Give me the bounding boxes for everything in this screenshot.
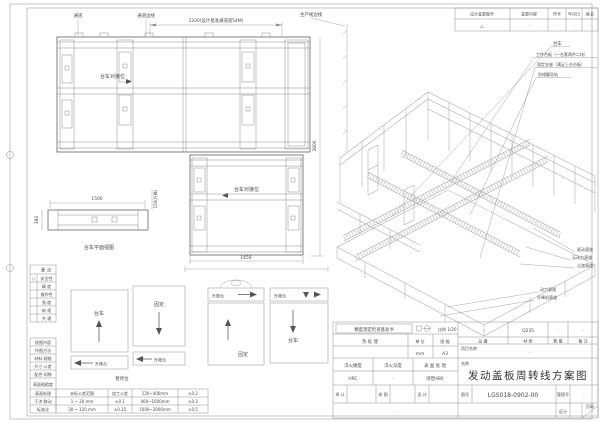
review-label: 校 图 (378, 391, 387, 397)
rev-val-1: △ (480, 25, 484, 30)
depth-label: 淬火深度 (384, 362, 402, 369)
rev-val-2: · (528, 25, 529, 30)
checklist-header: 重 点 (41, 267, 52, 274)
approve-label: 承 认 (335, 391, 344, 397)
checklist-item2: 材料·规格 (34, 355, 51, 361)
station-sub-label: 升降台 (154, 357, 166, 363)
checklist-item2: 表面粗糙度 (33, 381, 53, 387)
checklist-item: 强 度 (42, 299, 51, 305)
project-value: · (529, 351, 530, 356)
dim-380: 380 (34, 216, 40, 225)
qty-label: 数 量 (553, 338, 562, 344)
callout-workpiece-plate: 工件台板（一台套两件二块） (536, 51, 588, 57)
class-label: 区分 (559, 408, 567, 414)
material-label: 材 质 (523, 338, 532, 344)
tol-cell: 120~400mm (142, 391, 169, 396)
cad-canvas: 设计变更图号 变更内容 符号 年月日 姓名 △ · · · · 台车对接位 (0, 0, 600, 424)
checklist-item: 操作性 (41, 291, 53, 297)
callout-anti-tip-rail: 防倾翻导轨 (538, 71, 558, 77)
checklist-item2: 尺寸·公差 (34, 363, 51, 369)
dim-2200: 2200(设计基准通道宽54M) (189, 17, 244, 24)
note-value: · (582, 329, 583, 334)
unit-label: 单 位 (415, 338, 424, 344)
checklist-item: 精 度 (42, 283, 51, 289)
tol-cell: ±0.15 (114, 407, 127, 412)
dim-1500: 1500 (91, 196, 102, 202)
rev-col-3: 符号 (553, 11, 561, 17)
tol-cell: 30 ~ 120 mm (68, 407, 96, 412)
note-label: 备 注 (578, 338, 587, 344)
station-box-label: 台车 (94, 310, 104, 317)
revision-table: 设计变更图号 变更内容 符号 年月日 姓名 △ · · · · (455, 8, 598, 31)
mgmt-value: · (583, 393, 584, 398)
callout-drive-roller: 驱动滚道 (577, 246, 593, 252)
station-box-label: 固定 (238, 351, 248, 358)
plan-view-top: 台车对接位 通道 通道边线 2200(设计基准通道宽54M) 生产线边线 (57, 11, 347, 152)
checklist-mark-0: ○ (32, 276, 36, 281)
rev-col-2: 变更内容 (521, 11, 537, 17)
format-label: 图 幅 (440, 338, 449, 344)
format-value: A3 (442, 351, 448, 357)
callout-transition-roller: 过渡滚道 (577, 262, 593, 268)
checklist-item2: 作图方法 (35, 347, 51, 353)
hardness-value: HRC (348, 376, 357, 382)
station-top-label: 升降台 (274, 293, 286, 299)
checklist-item: 安全性 (41, 275, 53, 281)
checklist-header2: 校图内容 (35, 339, 51, 345)
rev-val-4: · (573, 25, 574, 30)
check-sheet-title: 精度测定检查基准书 (354, 326, 394, 333)
part-label: 品 番 (478, 338, 487, 344)
drawing-title: 发动盖板周转线方案图 (468, 369, 588, 382)
surface-label: 表 面 处 理 (424, 362, 446, 369)
unit-value: mm (416, 352, 425, 357)
iso-callouts: 台车 工件台板（一台套两件二块） 固定支座（满足上台台板） 防倾翻导轨 驱动滚道… (392, 40, 597, 316)
station-sub-label: 升降台 (95, 361, 107, 367)
dim-150-lift: 150(升降) (152, 189, 158, 208)
station-caption: 暂停位 (115, 375, 129, 382)
surface-value: 喷塑480 (426, 375, 443, 382)
tol-cell: ±0.3 (188, 399, 198, 404)
label-production-edge: 生产线边线 (300, 11, 323, 18)
station-box-label: 台车 (288, 337, 298, 344)
callout-idle-roller: 无动力滚道 (572, 254, 592, 260)
checklist-item: 新 规 (42, 307, 51, 313)
tol-cell: ±0.1 (115, 399, 125, 404)
checklist-item2: 表面处理 (35, 390, 51, 396)
dim-arrow-icon (276, 24, 282, 27)
tol-cell: 未标公差范围 (70, 390, 94, 396)
projection-symbol-icon (416, 326, 422, 331)
page-label: 页码 (586, 403, 594, 409)
checklist-item2: 干涉·移动 (34, 398, 51, 404)
part-value: · (482, 329, 483, 334)
dock-label-mid: 台车对接位 (234, 186, 259, 193)
drawing-sheet: 设计变更图号 变更内容 符号 年月日 姓名 △ · · · · 台车对接位 (0, 0, 600, 424)
callout-lifter-roller: 升降机滚道 (537, 294, 557, 300)
checklist-table: 重 点 ○ 安全性 精 度 操作性 强 度 新 规 共 通 校图内容 作图方法 … (30, 265, 56, 413)
dwgno-value: LGS018-0902-00 (488, 392, 539, 399)
dim-arrow-icon (150, 24, 156, 27)
rev-val-5: · (589, 25, 590, 30)
side-view: 1500 380 150(升降) 台车平面视图 (34, 189, 158, 251)
label-passage-edge: 通道边线 (137, 12, 155, 19)
dim-1650: 1650 (240, 255, 251, 261)
heat-treat-label: 热 处 理 (362, 338, 379, 345)
dwgno-label: 图号 (461, 391, 469, 397)
tol-cell: 400~1000mm (141, 399, 170, 404)
tol-cell: 加工公差 (112, 390, 128, 396)
tol-cell: ±0.2 (188, 391, 198, 396)
rev-col-1: 设计变更图号 (470, 11, 494, 17)
title-block: 精度测定检查基准书 比例 1/20 热 处 理 单 位 图 幅 mm A3 淬火… (333, 322, 598, 418)
label-passage: 通道 (74, 12, 83, 19)
tol-cell: 1000~3000mm (139, 407, 171, 412)
name-label: 名称 (461, 360, 469, 366)
rev-col-4: 年月日 (568, 11, 580, 17)
callout-power-roller: 动力滚道 (540, 286, 556, 292)
side-view-caption: 台车平面视图 (84, 244, 114, 251)
depth-value: · (392, 377, 393, 382)
bottom-note: · (394, 410, 395, 415)
hardness-label: 淬火硬度 (344, 362, 362, 369)
mgmt-label: 管理号 (557, 391, 569, 397)
material-value: Q235 (522, 328, 534, 334)
rev-col-5: 姓名 (586, 11, 594, 17)
design-label: 设 计 (417, 391, 426, 397)
callout-fixed-support: 固定支座（满足上台台板） (537, 61, 585, 67)
checklist-item2: 标准化 (37, 406, 49, 412)
dim-3800: 3800 (312, 140, 318, 151)
scale-value: 1/20 (448, 327, 457, 332)
plan-view-mid: 台车对接位 1650 3800 (190, 37, 323, 264)
project-label: 项目名称 (461, 345, 477, 351)
station-diagram: 台车 升降台 固定 升降台 暂停位 升降台 固定 升降台 台车 (71, 266, 328, 382)
station-top-label: 升降台 (212, 293, 224, 299)
callout-trolley: 台车 (553, 40, 562, 47)
qty-value: · (557, 329, 558, 334)
station-box-label: 固定 (154, 301, 164, 308)
scale-label: 比例 (438, 326, 446, 332)
tolerance-table: 未标公差范围 加工公差 120~400mm ±0.2 1 ~ 30 mm ±0.… (56, 389, 208, 413)
dock-label-top: 台车对接位 (100, 73, 125, 80)
checklist-item: 共 通 (42, 315, 51, 321)
tol-cell: 1 ~ 30 mm (71, 399, 94, 404)
tol-cell: ±0.5 (188, 407, 198, 412)
rev-val-3: · (556, 25, 557, 30)
class-value: · (575, 410, 576, 415)
checklist-item2: 配合·间隙 (34, 371, 51, 377)
